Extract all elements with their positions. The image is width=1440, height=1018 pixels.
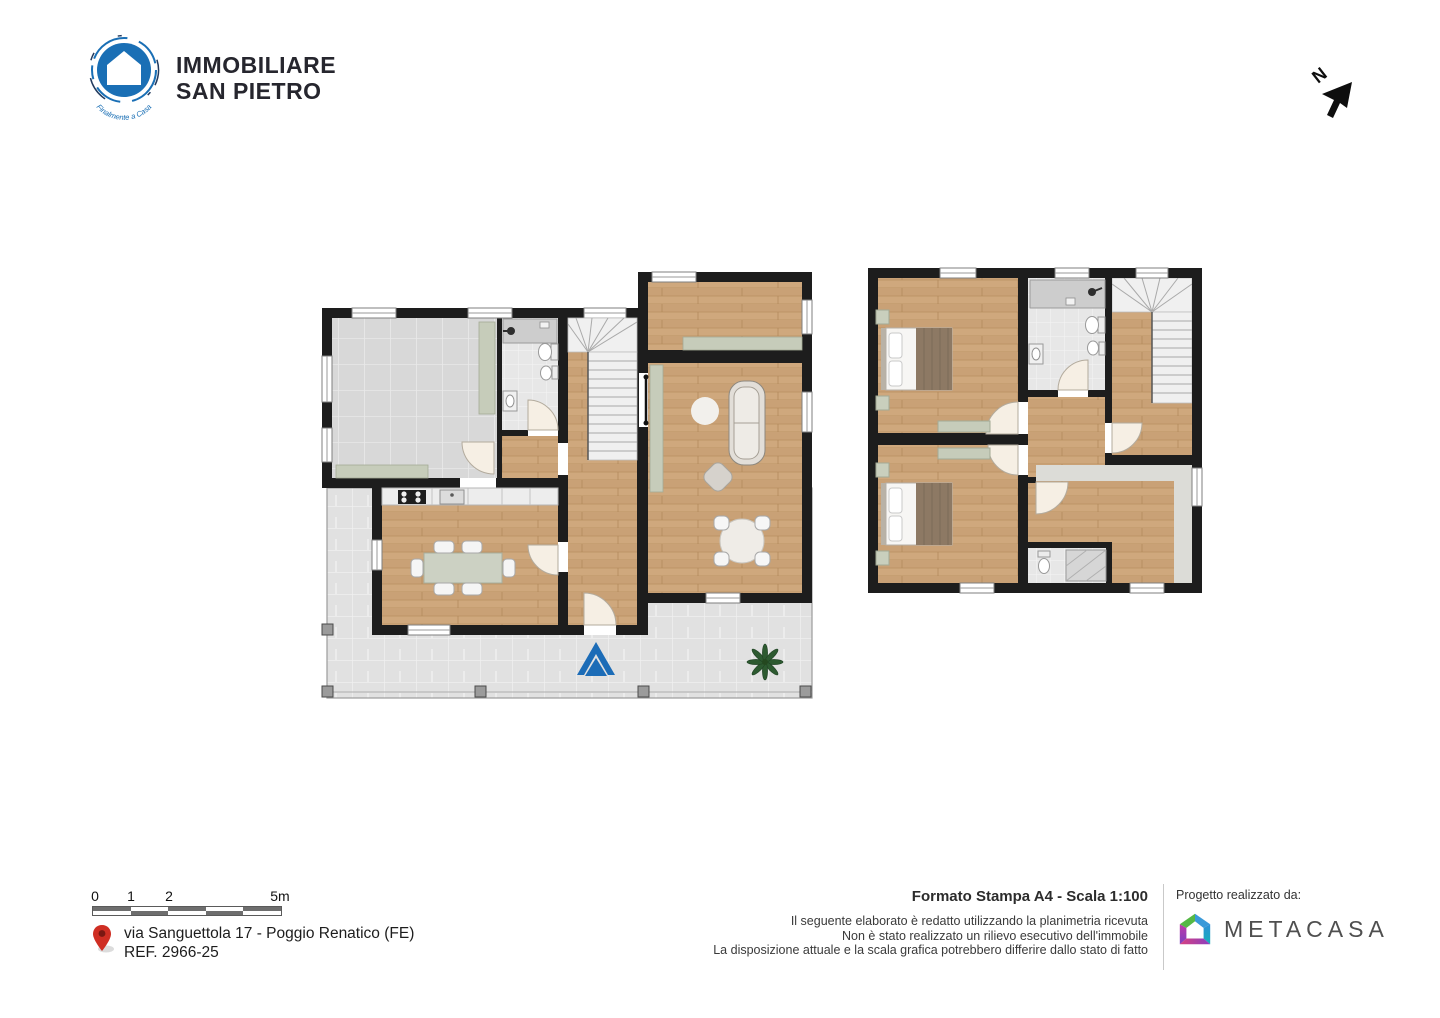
nightstand: [876, 310, 889, 324]
brand-name: METACASA: [1224, 916, 1389, 943]
bed-2-headboard: [881, 483, 886, 545]
nightstand: [876, 396, 889, 410]
scale-bar-graphic: [92, 906, 282, 916]
nightstand: [876, 551, 889, 565]
floor-plans: [0, 0, 1440, 1018]
print-info-block: Formato Stampa A4 - Scala 1:100 Il segue…: [640, 888, 1148, 958]
print-format: Formato Stampa A4 - Scala 1:100: [640, 888, 1148, 905]
scale-bar: 0 1 2 5m: [92, 888, 292, 916]
bed-1-headboard: [881, 328, 886, 390]
bedroom-1-wardrobe: [938, 421, 990, 432]
scale-labels: 0 1 2 5m: [92, 888, 292, 906]
hallway-floor: [1028, 390, 1105, 465]
entry-sideboard: [683, 337, 802, 350]
disclaimer-line-1: Il seguente elaborato è redatto utilizza…: [640, 914, 1148, 929]
toilet: [1098, 317, 1105, 333]
footer-divider: [1163, 884, 1164, 970]
credit-label: Progetto realizzato da:: [1176, 888, 1389, 902]
scale-label-5m: 5m: [270, 888, 289, 904]
hall-ground-floor: [502, 430, 558, 478]
metacasa-logo-icon: [1176, 910, 1214, 948]
property-address-block: via Sanguettola 17 - Poggio Renatico (FE…: [92, 924, 414, 962]
bed-1-blanket: [916, 328, 952, 390]
credit-block: Progetto realizzato da:: [1176, 888, 1389, 948]
toilet: [1039, 559, 1050, 574]
scale-label-0: 0: [91, 888, 99, 904]
bed-2-blanket: [916, 483, 952, 545]
plant-icon: [747, 644, 783, 680]
scale-label-2: 2: [165, 888, 173, 904]
floorplan-page: Finalmente a Casa IMMOBILIARE SAN PIETRO…: [0, 0, 1440, 1018]
toilet: [551, 344, 558, 360]
coffee-table: [691, 397, 719, 425]
bedroom-3-wardrobe-side: [1174, 465, 1192, 583]
dining-table: [424, 553, 502, 583]
scale-label-1: 1: [127, 888, 135, 904]
kitchen-sink: [440, 490, 464, 504]
bedroom-2-wardrobe: [938, 448, 990, 459]
address-line: via Sanguettola 17 - Poggio Renatico (FE…: [124, 924, 414, 943]
location-pin-icon: [92, 924, 114, 956]
first-floor-plan: [868, 268, 1202, 593]
reference-line: REF. 2966-25: [124, 943, 414, 962]
bidet: [1099, 342, 1105, 355]
stove: [398, 490, 426, 504]
living-sideboard: [650, 365, 663, 492]
nightstand: [876, 463, 889, 477]
disclaimer-line-2: Non è stato realizzato un rilievo esecut…: [640, 929, 1148, 944]
disclaimer-line-3: La disposizione attuale e la scala grafi…: [640, 943, 1148, 958]
ground-floor-plan: [322, 272, 812, 698]
bedroom-3-wardrobe-top: [1036, 465, 1192, 481]
bidet: [552, 366, 558, 379]
